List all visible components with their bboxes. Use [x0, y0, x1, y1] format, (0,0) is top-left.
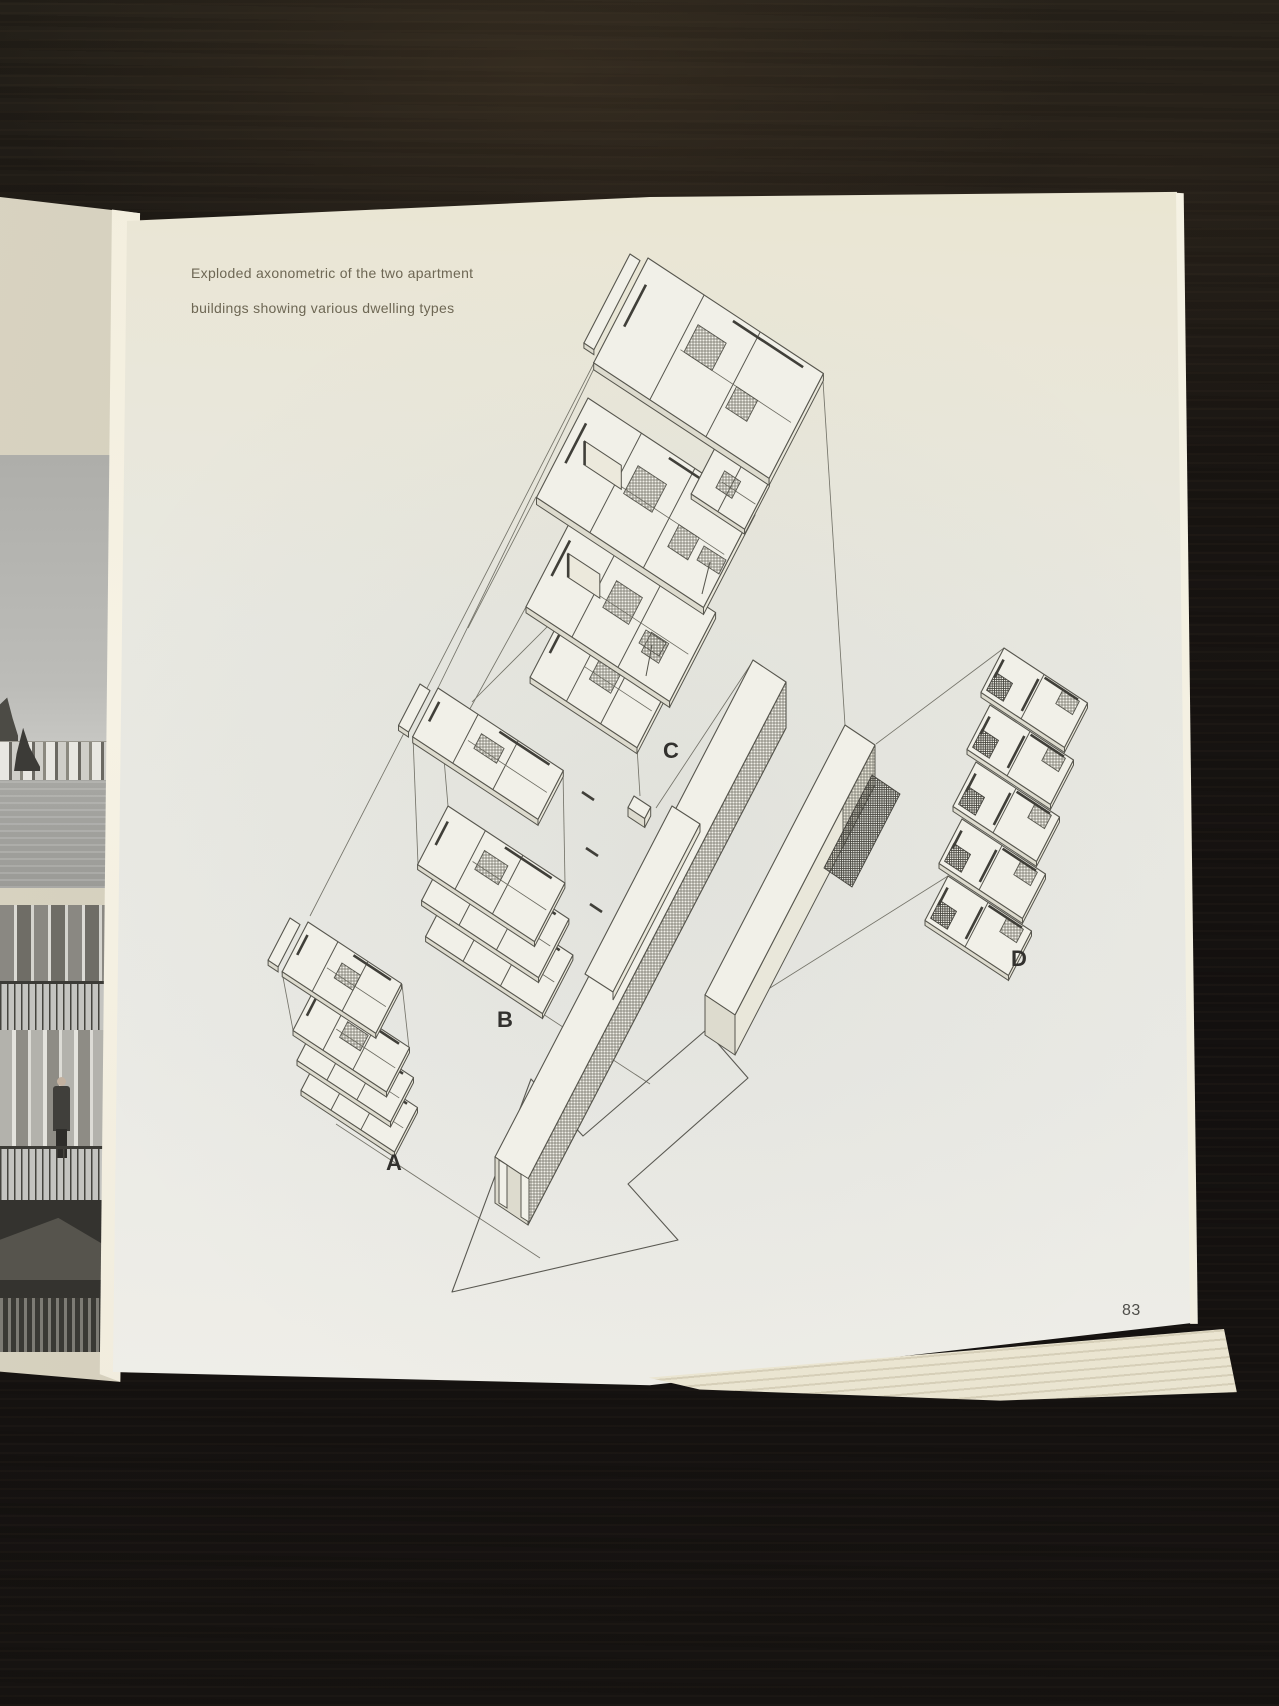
caption-line-2: buildings showing various dwelling types [191, 291, 481, 326]
building-a [268, 918, 417, 1157]
figure-caption: Exploded axonometric of the two apartmen… [191, 256, 481, 326]
building-b [399, 684, 603, 1019]
open-book-photo: Exploded axonometric of the two apartmen… [0, 0, 1279, 1706]
building-label-b: B [497, 1007, 513, 1033]
building-label-a: A [386, 1150, 402, 1176]
building-label-c: C [663, 738, 679, 764]
page-number: 83 [1122, 1302, 1141, 1320]
building-label-d: D [1011, 946, 1027, 972]
building-d [925, 648, 1088, 980]
caption-line-1: Exploded axonometric of the two apartmen… [191, 256, 481, 291]
